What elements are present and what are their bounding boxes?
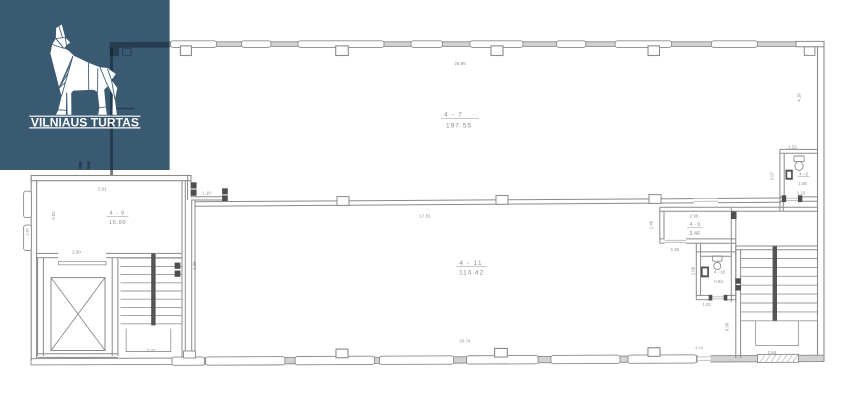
- svg-text:6.05: 6.05: [192, 261, 197, 270]
- svg-text:1.46: 1.46: [648, 220, 653, 229]
- svg-text:2.90: 2.90: [72, 250, 81, 255]
- svg-text:5.51: 5.51: [98, 187, 107, 192]
- svg-text:2.37: 2.37: [147, 348, 156, 353]
- svg-text:4 - 8: 4 - 8: [799, 172, 808, 177]
- svg-text:0.92: 0.92: [714, 279, 723, 284]
- svg-text:1.10: 1.10: [202, 190, 211, 195]
- svg-text:4.18: 4.18: [797, 93, 802, 102]
- svg-text:VILNIAUS TURTAS: VILNIAUS TURTAS: [31, 116, 139, 129]
- svg-text:114.42: 114.42: [459, 269, 484, 276]
- svg-text:1.80: 1.80: [24, 227, 29, 235]
- svg-text:0.98: 0.98: [725, 322, 730, 331]
- svg-text:5.01: 5.01: [51, 211, 56, 220]
- svg-text:1.20: 1.20: [797, 190, 806, 195]
- svg-text:2.99: 2.99: [690, 213, 699, 218]
- svg-text:1.05: 1.05: [798, 181, 807, 186]
- svg-text:4 - 6: 4 - 6: [109, 211, 125, 217]
- svg-text:4 - 10: 4 - 10: [714, 269, 726, 274]
- svg-text:2.07: 2.07: [770, 171, 775, 180]
- svg-text:4 - 7: 4 - 7: [444, 112, 463, 119]
- svg-text:3.46: 3.46: [690, 231, 701, 237]
- svg-text:2.84: 2.84: [768, 350, 777, 355]
- svg-text:1.52: 1.52: [788, 145, 797, 150]
- svg-text:4.15: 4.15: [695, 345, 703, 350]
- svg-text:1.03: 1.03: [702, 302, 711, 307]
- svg-text:17.81: 17.81: [419, 214, 431, 219]
- svg-text:15.99: 15.99: [109, 220, 126, 226]
- svg-text:1.65: 1.65: [671, 247, 680, 252]
- svg-text:2.06: 2.06: [691, 266, 696, 275]
- svg-text:20.74: 20.74: [459, 339, 471, 344]
- svg-text:4 - 11: 4 - 11: [459, 260, 482, 267]
- svg-text:197.55: 197.55: [446, 122, 472, 129]
- svg-text:28.96: 28.96: [454, 61, 466, 66]
